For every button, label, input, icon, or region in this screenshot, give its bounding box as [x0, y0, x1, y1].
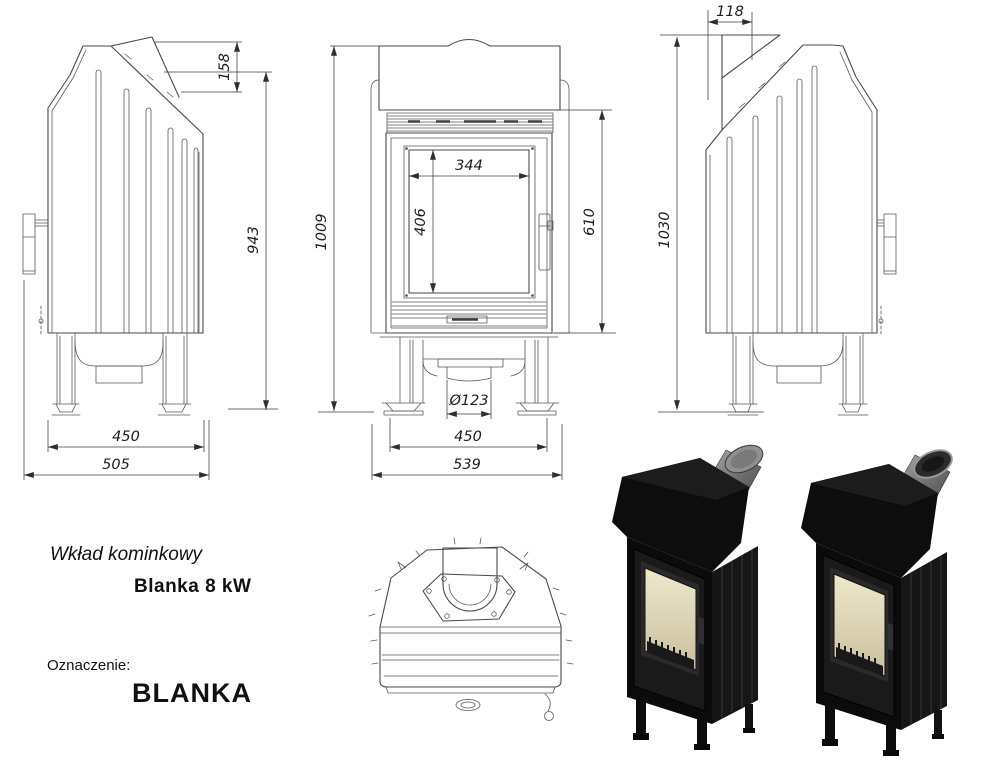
side-fins [901, 552, 947, 730]
door-handle [539, 214, 553, 270]
dim-left-depth: 505 [102, 457, 130, 473]
dim-glass-height: 406 [413, 208, 429, 236]
dim-left-stub-height: 158 [217, 53, 233, 81]
right-view-bracket [884, 214, 896, 274]
right-view-ribs [727, 66, 817, 333]
top-view-handle [456, 700, 480, 711]
model-power-label: Blanka 8 kW [134, 576, 251, 598]
dim-front-leg-span: 450 [454, 429, 482, 445]
designation-value: BLANKA [132, 678, 252, 709]
designation-label: Oznaczenie: [47, 657, 130, 674]
dim-front-total-height: 1009 [314, 214, 330, 251]
left-side-view: 158 943 450 505 [23, 37, 278, 480]
right-side-view: 118 1030 [657, 4, 896, 415]
leg [697, 716, 707, 746]
leg [636, 697, 646, 735]
product-photo-right [801, 445, 956, 756]
dim-right-total-height: 1030 [657, 212, 673, 249]
dim-left-rear-height: 943 [246, 226, 262, 254]
product-photo-left [612, 440, 767, 750]
side-fins [712, 546, 758, 724]
front-view: 1009 344 406 610 Ø123 450 539 [314, 40, 616, 481]
dim-door-height: 610 [582, 208, 598, 236]
dim-glass-width: 344 [455, 158, 483, 174]
dim-flue-diameter: Ø123 [448, 393, 488, 409]
drawing-sheet-page: { "page": { "colors": { "background": "#… [0, 0, 982, 767]
technical-drawing-sheet: 158 943 450 505 [0, 0, 982, 767]
leg [745, 704, 753, 730]
product-type-label: Wkład kominkowy [50, 544, 202, 566]
left-view-bracket [23, 214, 35, 274]
dim-left-feet-span: 450 [112, 429, 140, 445]
leg [825, 703, 835, 741]
leg [934, 710, 942, 736]
leg [886, 722, 896, 752]
dim-flue-offset: 118 [716, 4, 744, 20]
dim-front-width: 539 [453, 457, 481, 473]
top-view [369, 538, 573, 721]
left-view-ribs [96, 70, 198, 333]
